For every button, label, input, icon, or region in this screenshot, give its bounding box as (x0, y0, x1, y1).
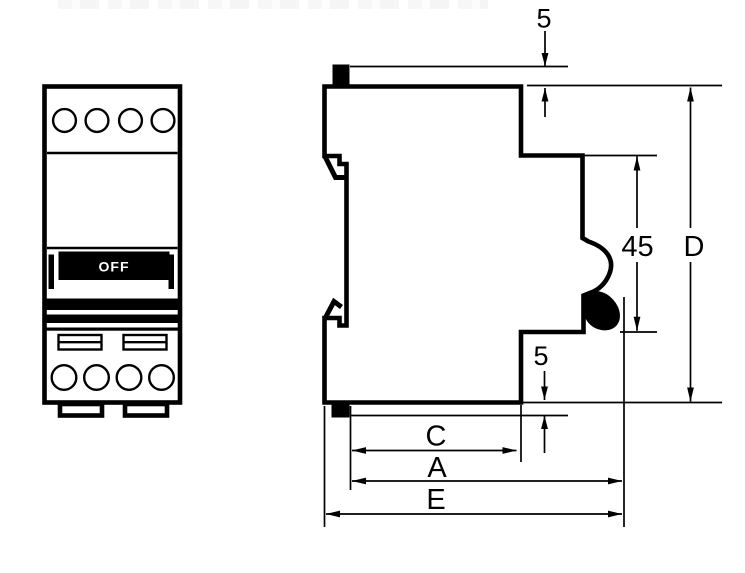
front-band-3 (44, 328, 180, 331)
arrowhead-down (542, 53, 549, 67)
arrowhead-left (352, 478, 366, 485)
arrowhead-left (326, 511, 340, 518)
arrowhead-down (634, 317, 641, 331)
arrowhead-left (352, 447, 366, 454)
dim-total-depth-e: E (326, 484, 622, 517)
dim-handle-top-5: 5 (536, 4, 551, 118)
arrowhead-right (608, 511, 622, 518)
dim-housing-depth-c: C (352, 421, 517, 454)
arrowhead-up (542, 88, 549, 102)
arrowhead-down (541, 387, 548, 401)
dim-label-e: E (426, 484, 445, 516)
breaker-drawing: OFF (0, 0, 745, 573)
front-foot-right (125, 404, 167, 416)
dim-handle-bottom-5: 5 (533, 341, 548, 453)
front-foot-left (60, 404, 102, 416)
drawing-canvas: OFF (0, 0, 745, 573)
arrowhead-down (687, 388, 694, 402)
dim-label-top-5: 5 (536, 4, 551, 34)
terminal-clip-blob (583, 291, 620, 330)
din-claw-bottom (326, 302, 342, 318)
recess-wall-left (49, 255, 55, 290)
front-band-1 (44, 299, 180, 311)
front-body (45, 87, 181, 403)
dim-label-d: D (684, 231, 705, 263)
arrowhead-right (503, 447, 517, 454)
arrowhead-right (608, 478, 622, 485)
side-view (325, 65, 620, 418)
dim-depth-a: A (352, 452, 622, 484)
dim-label-c: C (426, 421, 447, 453)
toggle-state-label: OFF (99, 259, 130, 275)
front-view: OFF (44, 87, 180, 416)
dim-label-45: 45 (621, 231, 653, 263)
side-profile-outline (325, 87, 612, 403)
front-band-2 (44, 315, 180, 324)
side-toggle-handle-top (333, 65, 350, 87)
dim-label-a: A (427, 452, 447, 484)
dim-front-face-45: 45 (621, 157, 653, 331)
arrowhead-up (541, 416, 548, 430)
dim-label-bottom-5: 5 (533, 341, 548, 371)
dim-total-height-d: D (684, 88, 705, 402)
